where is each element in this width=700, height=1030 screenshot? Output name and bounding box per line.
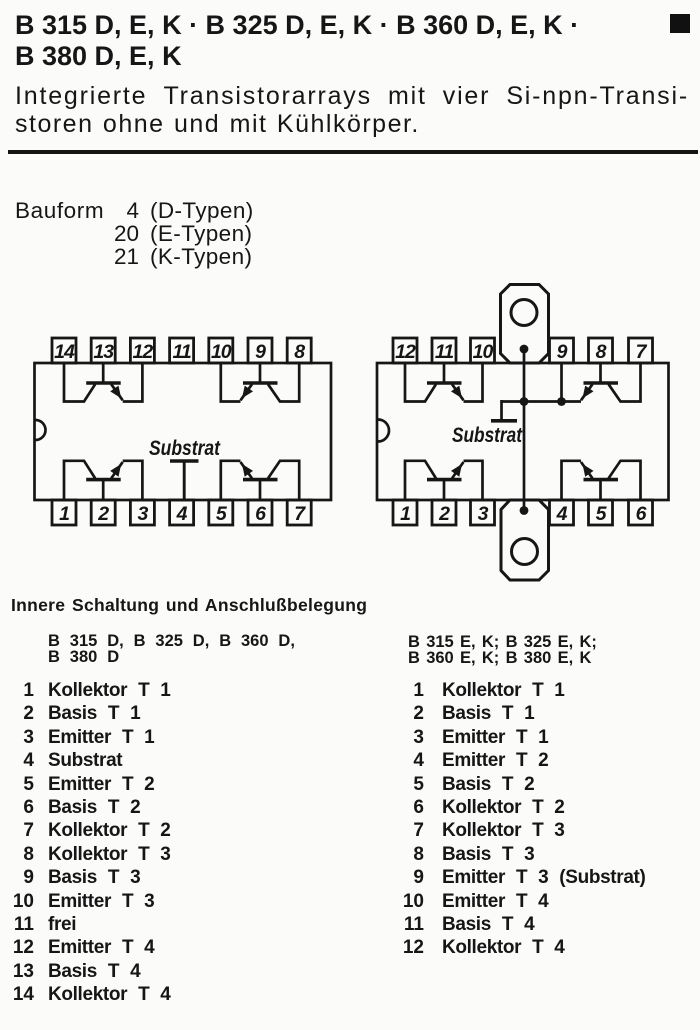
svg-text:10: 10 xyxy=(211,341,232,363)
svg-text:2: 2 xyxy=(438,503,450,525)
svg-text:12: 12 xyxy=(133,341,154,363)
svg-text:14: 14 xyxy=(54,341,75,363)
svg-text:7: 7 xyxy=(294,503,306,525)
svg-text:5: 5 xyxy=(216,503,228,525)
svg-text:Substrat: Substrat xyxy=(149,436,221,460)
svg-text:6: 6 xyxy=(636,503,647,525)
svg-text:11: 11 xyxy=(435,341,453,363)
svg-text:Substrat: Substrat xyxy=(452,423,523,447)
svg-text:13: 13 xyxy=(93,341,114,363)
svg-text:9: 9 xyxy=(557,341,568,363)
svg-text:11: 11 xyxy=(172,341,190,363)
svg-text:8: 8 xyxy=(294,341,305,363)
svg-text:12: 12 xyxy=(395,341,416,363)
svg-text:7: 7 xyxy=(636,341,648,363)
svg-text:5: 5 xyxy=(596,503,608,525)
svg-text:2: 2 xyxy=(97,503,109,525)
svg-text:6: 6 xyxy=(255,503,266,525)
svg-text:1: 1 xyxy=(400,503,410,525)
svg-text:9: 9 xyxy=(255,341,266,363)
svg-text:8: 8 xyxy=(596,341,607,363)
svg-text:4: 4 xyxy=(556,503,568,525)
svg-text:4: 4 xyxy=(176,503,188,525)
svg-text:3: 3 xyxy=(137,503,148,525)
svg-text:10: 10 xyxy=(473,341,494,363)
svg-text:3: 3 xyxy=(478,503,489,525)
svg-text:1: 1 xyxy=(59,503,69,525)
